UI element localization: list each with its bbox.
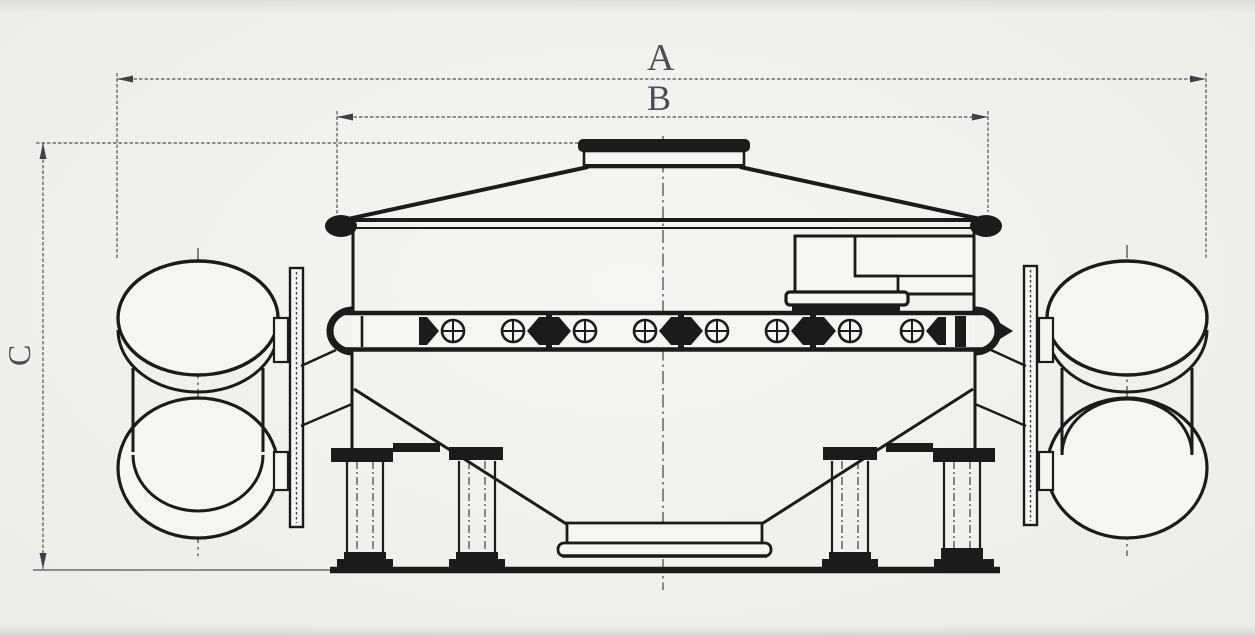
foot-pad <box>449 559 505 570</box>
inlet-port <box>578 139 750 167</box>
lid-left-end-cap <box>325 215 357 237</box>
left-damper-assembly <box>118 248 352 556</box>
left-clip-bottom <box>274 452 288 490</box>
right-arm-upper <box>991 350 1026 366</box>
bolt <box>901 320 923 342</box>
drawing-sheet: A B C <box>0 0 1255 635</box>
drive-housing-flange <box>786 292 908 305</box>
dim-b-arrow-right <box>972 114 988 121</box>
dim-c-arrow-top <box>40 143 47 159</box>
foot-pad <box>822 559 878 570</box>
band-right-tab <box>955 316 966 347</box>
leg-flange <box>331 448 393 462</box>
sieve-machine <box>325 139 1013 570</box>
right-damper-assembly <box>975 245 1207 556</box>
dim-a-arrow-left <box>117 76 133 83</box>
left-damper-lower-cylinder <box>118 398 278 538</box>
clamp-band <box>330 310 1013 352</box>
bolt <box>839 320 861 342</box>
left-clip-top <box>274 318 288 362</box>
dim-a-arrow-right <box>1190 76 1206 83</box>
band-left-cap <box>330 310 353 352</box>
bolt <box>502 320 524 342</box>
lid-right-end-cap <box>970 215 1002 237</box>
dim-c-label: C <box>1 345 37 366</box>
outlet-neck <box>567 523 762 543</box>
right-clip-bottom <box>1039 452 1053 490</box>
right-arm-lower <box>975 404 1026 426</box>
left-damper-upper-cylinder <box>118 261 278 375</box>
leg-flange <box>823 447 877 460</box>
foot-pad <box>337 559 393 570</box>
leg-flange <box>933 448 995 462</box>
leg-flange-step <box>393 443 440 452</box>
left-arm-upper <box>301 350 336 366</box>
right-clip-top <box>1039 318 1053 362</box>
bolt <box>706 320 728 342</box>
technical-drawing: A B C <box>0 0 1255 635</box>
lid-slope-right <box>740 167 980 219</box>
inlet-flange <box>578 139 750 152</box>
leg-flange-step <box>886 443 933 452</box>
bolt <box>574 320 596 342</box>
outlet-flange <box>558 543 771 556</box>
band-right-cap <box>975 310 998 352</box>
drive-housing <box>786 236 974 313</box>
bolt <box>766 320 788 342</box>
bolt <box>634 320 656 342</box>
band-right-cap-tip <box>1000 323 1013 339</box>
dim-c-arrow-bottom <box>40 553 47 569</box>
drive-housing-base <box>792 305 900 313</box>
dim-a-label: A <box>647 37 675 79</box>
bolt <box>442 320 464 342</box>
lid-slope-left <box>348 167 588 219</box>
dim-b-label: B <box>647 78 671 118</box>
foot-pad <box>934 559 994 570</box>
left-arm-lower <box>301 404 352 426</box>
dim-b-arrow-left <box>337 114 353 121</box>
drive-housing-box <box>795 236 974 294</box>
right-damper-upper-cylinder <box>1047 261 1207 375</box>
right-damper-lower-cylinder <box>1047 398 1207 538</box>
